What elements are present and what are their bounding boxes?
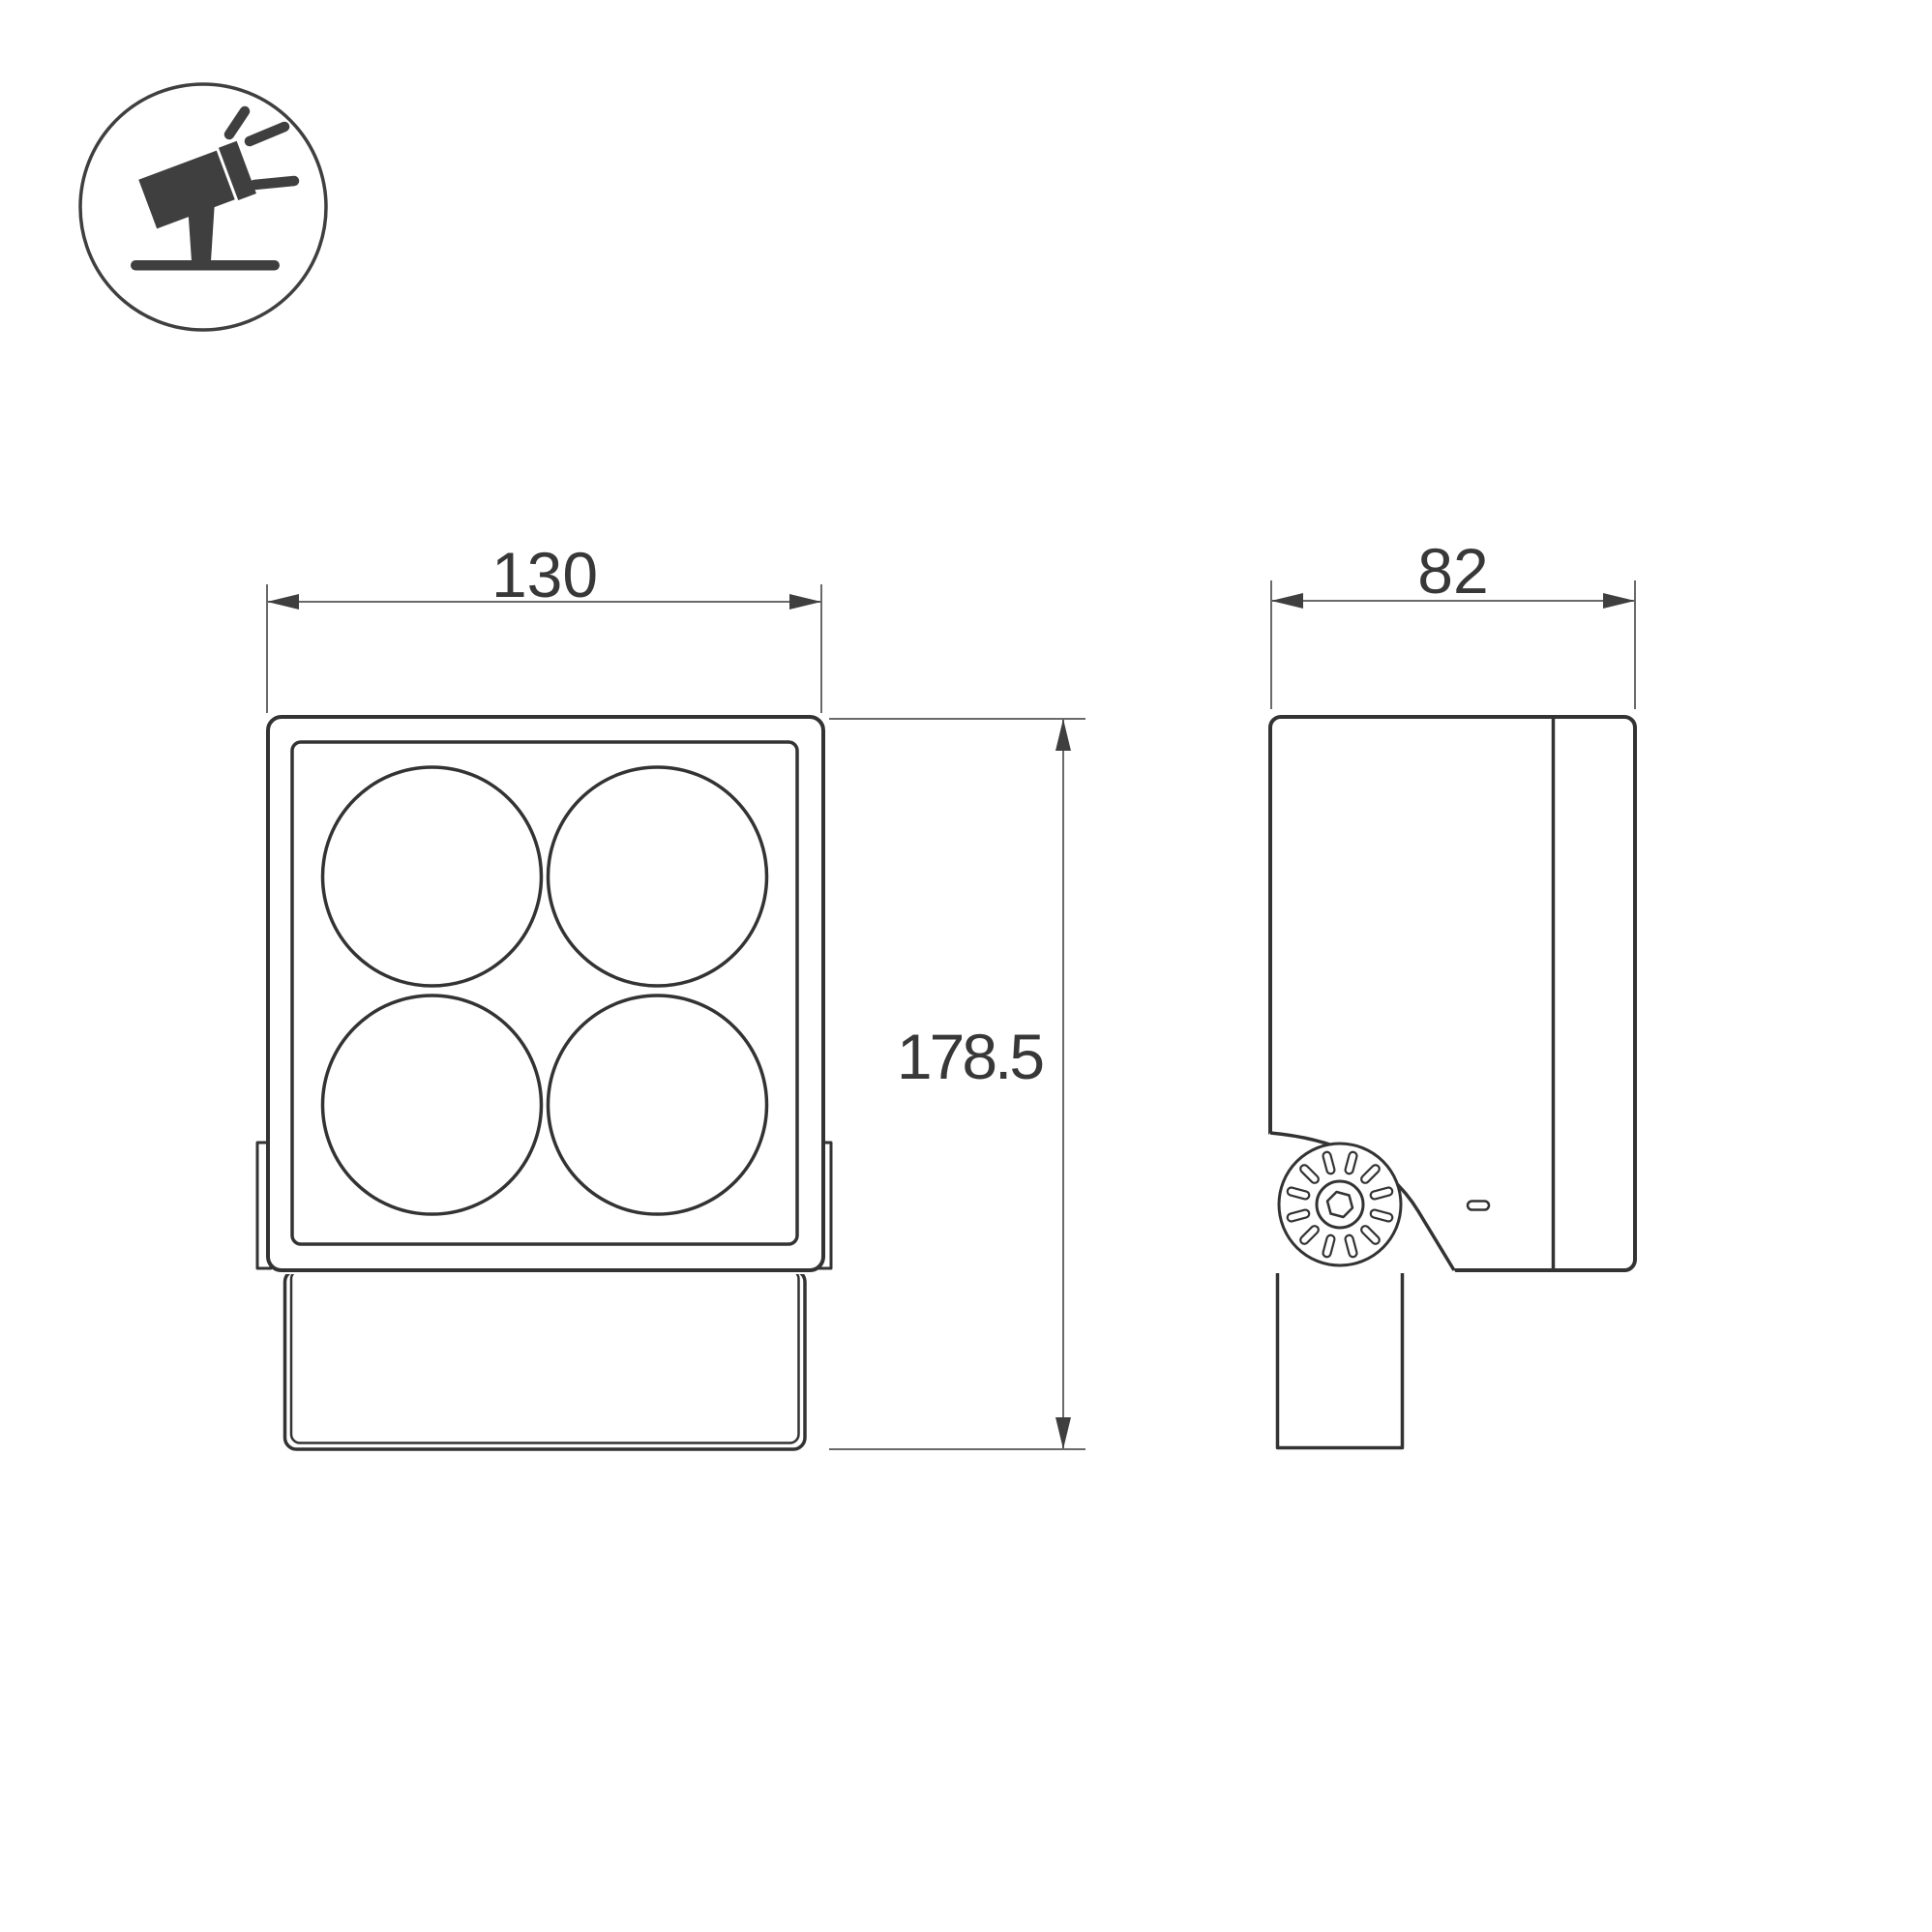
floodlight-base (131, 260, 280, 271)
floodlight-body (138, 151, 234, 229)
rear-housing-outer (285, 1270, 806, 1449)
height-label: 178.5 (897, 1021, 1042, 1092)
front-view (257, 717, 831, 1449)
dimension-height: 178.5 (829, 719, 1085, 1449)
knob-hub (1317, 1181, 1363, 1228)
side-view (1266, 717, 1635, 1448)
floodlight-icon (131, 111, 294, 271)
arrowhead-left-icon (1271, 593, 1303, 609)
floodlight-stem (188, 201, 215, 261)
technical-drawing-canvas: 130 82 178.5 (0, 0, 1932, 1932)
arrowhead-left-icon (267, 594, 299, 609)
arrowhead-right-icon (1603, 593, 1635, 609)
arrowhead-right-icon (789, 594, 821, 609)
spotlight-type-icon (80, 84, 326, 330)
arrowhead-up-icon (1055, 719, 1071, 751)
dimension-depth: 82 (1271, 535, 1635, 709)
front-width-label: 130 (491, 539, 598, 610)
front-frame (268, 717, 823, 1270)
light-ray-icon (229, 111, 245, 134)
lens-circle (549, 767, 767, 986)
vent-slot (1468, 1202, 1489, 1210)
light-ray-icon (250, 127, 284, 141)
dimension-front-width: 130 (267, 539, 821, 713)
spotlight-dimension-drawing: 130 82 178.5 (0, 0, 1932, 1932)
light-ray-icon (254, 181, 294, 185)
arrowhead-down-icon (1055, 1417, 1071, 1449)
depth-label: 82 (1417, 535, 1488, 607)
lens-circle (323, 996, 542, 1214)
lens-circle (323, 767, 542, 986)
lens-circle (549, 996, 767, 1214)
